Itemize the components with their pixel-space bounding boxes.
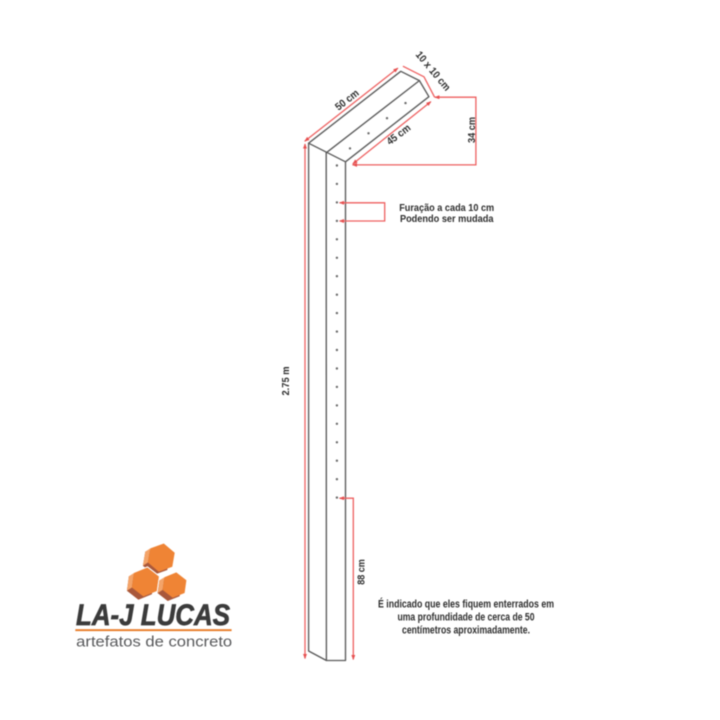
svg-text:2.75 m: 2.75 m	[280, 367, 292, 396]
svg-text:uma profundidade de cerca de 5: uma profundidade de cerca de 50	[398, 611, 535, 623]
svg-text:centímetros aproximadamente.: centímetros aproximadamente.	[402, 625, 530, 637]
svg-text:Podendo ser mudada: Podendo ser mudada	[400, 213, 494, 225]
svg-text:artefatos de concreto: artefatos de concreto	[76, 635, 232, 651]
svg-text:34 cm: 34 cm	[466, 117, 478, 143]
svg-text:88 cm: 88 cm	[356, 559, 368, 585]
svg-text:É indicado que eles fiquem ent: É indicado que eles fiquem enterrados em	[378, 597, 554, 610]
svg-text:LA-J LUCAS: LA-J LUCAS	[76, 599, 230, 632]
